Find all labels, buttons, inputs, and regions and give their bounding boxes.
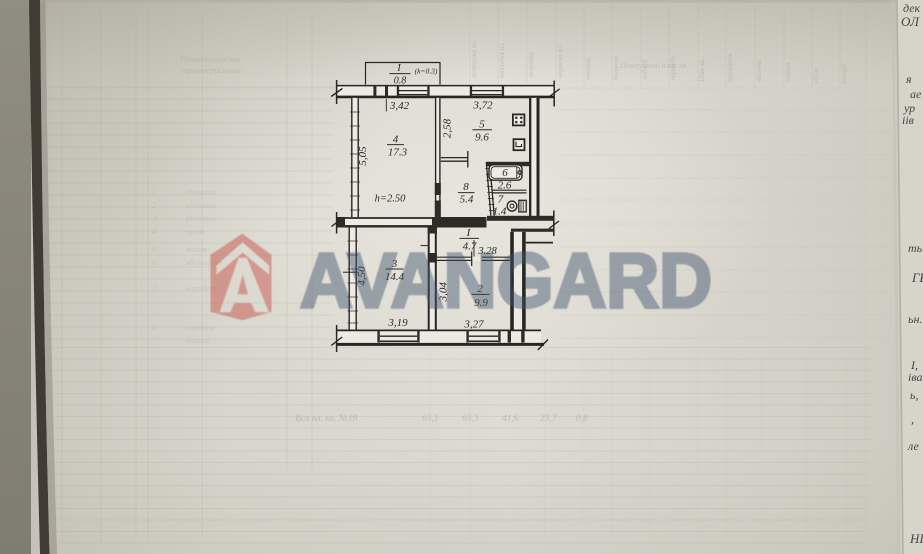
svg-text:AVANGARD: AVANGARD (300, 238, 712, 324)
svg-text:5: 5 (479, 119, 485, 131)
svg-text:5.4: 5.4 (460, 194, 474, 206)
svg-text:3,42: 3,42 (389, 100, 410, 112)
svg-text:23,7: 23,7 (540, 414, 558, 424)
svg-text:2.6: 2.6 (498, 180, 512, 192)
svg-text:Вся пл. кв. №19: Вся пл. кв. №19 (295, 414, 357, 424)
svg-text:1.4: 1.4 (493, 206, 507, 218)
svg-text:9.6: 9.6 (475, 132, 489, 144)
svg-text:65,3: 65,3 (462, 414, 479, 424)
svg-text:дек: дек (903, 1, 921, 15)
svg-text:Ціна кв.: Ціна кв. (698, 58, 706, 83)
svg-text:ванна: ванна (186, 244, 207, 254)
svg-text:примітки: примітки (726, 53, 734, 82)
svg-text:6: 6 (502, 167, 508, 179)
svg-text:1: 1 (152, 187, 156, 197)
svg-text:0.8: 0.8 (394, 76, 407, 87)
svg-text:0,8: 0,8 (576, 414, 588, 424)
svg-text:3,72: 3,72 (472, 100, 493, 112)
svg-text:іів: іів (902, 113, 914, 127)
svg-text:I: I (396, 63, 401, 74)
svg-text:балкон: балкон (186, 335, 210, 345)
svg-text:Поверховий план кв.: Поверховий план кв. (619, 61, 688, 70)
svg-text:балкони: балкони (612, 56, 620, 80)
svg-text:поверх: поверх (784, 61, 792, 82)
svg-text:ле: ле (907, 439, 920, 453)
svg-text:ГЬ: ГЬ (911, 270, 923, 285)
svg-text:загальна: загальна (527, 52, 535, 79)
svg-text:41,6: 41,6 (502, 414, 519, 424)
svg-text:кухня: кухня (186, 226, 206, 236)
svg-text:5: 5 (152, 244, 156, 254)
svg-text:об'єм: об'єм (812, 68, 820, 84)
svg-text:7: 7 (498, 194, 504, 206)
svg-text:корисна пл.: корисна пл. (556, 44, 564, 78)
svg-text:опалюв.: опалюв. (584, 56, 592, 80)
svg-text:h=2.50: h=2.50 (375, 194, 406, 205)
svg-text:кімната: кімната (186, 200, 217, 210)
svg-text:кімната: кімната (186, 213, 217, 223)
svg-text:я: я (905, 72, 912, 86)
svg-text:Призначення та: Призначення та (179, 54, 239, 64)
svg-text:8: 8 (463, 181, 469, 193)
svg-text:3: 3 (151, 213, 156, 223)
svg-text:житлова пл.: житлова пл. (470, 40, 478, 78)
svg-text:НІ: НІ (909, 531, 923, 546)
svg-text:кімната: кімната (186, 187, 217, 197)
svg-text:ьн.: ьн. (908, 312, 922, 326)
svg-text:іва: іва (908, 370, 922, 384)
svg-text:5,05: 5,05 (357, 146, 369, 166)
svg-text:65,1: 65,1 (422, 414, 439, 424)
svg-text:підсобна пл.: підсобна пл. (498, 42, 506, 78)
svg-text:ть: ть (908, 241, 923, 255)
svg-text:ае: ае (910, 87, 922, 101)
svg-text:(k=0.3): (k=0.3) (415, 67, 438, 76)
svg-text:ь,: ь, (910, 388, 918, 402)
svg-text:2,58: 2,58 (442, 118, 454, 138)
svg-text:коридор: коридор (186, 322, 215, 332)
svg-text:характеристика: характеристика (179, 65, 241, 75)
svg-text:,: , (911, 412, 914, 426)
svg-text:площа: площа (840, 64, 848, 84)
svg-text:4: 4 (393, 134, 399, 146)
svg-text:висота: висота (755, 60, 763, 82)
svg-text:17.3: 17.3 (388, 147, 408, 159)
svg-text:ОЛ: ОЛ (901, 14, 920, 29)
